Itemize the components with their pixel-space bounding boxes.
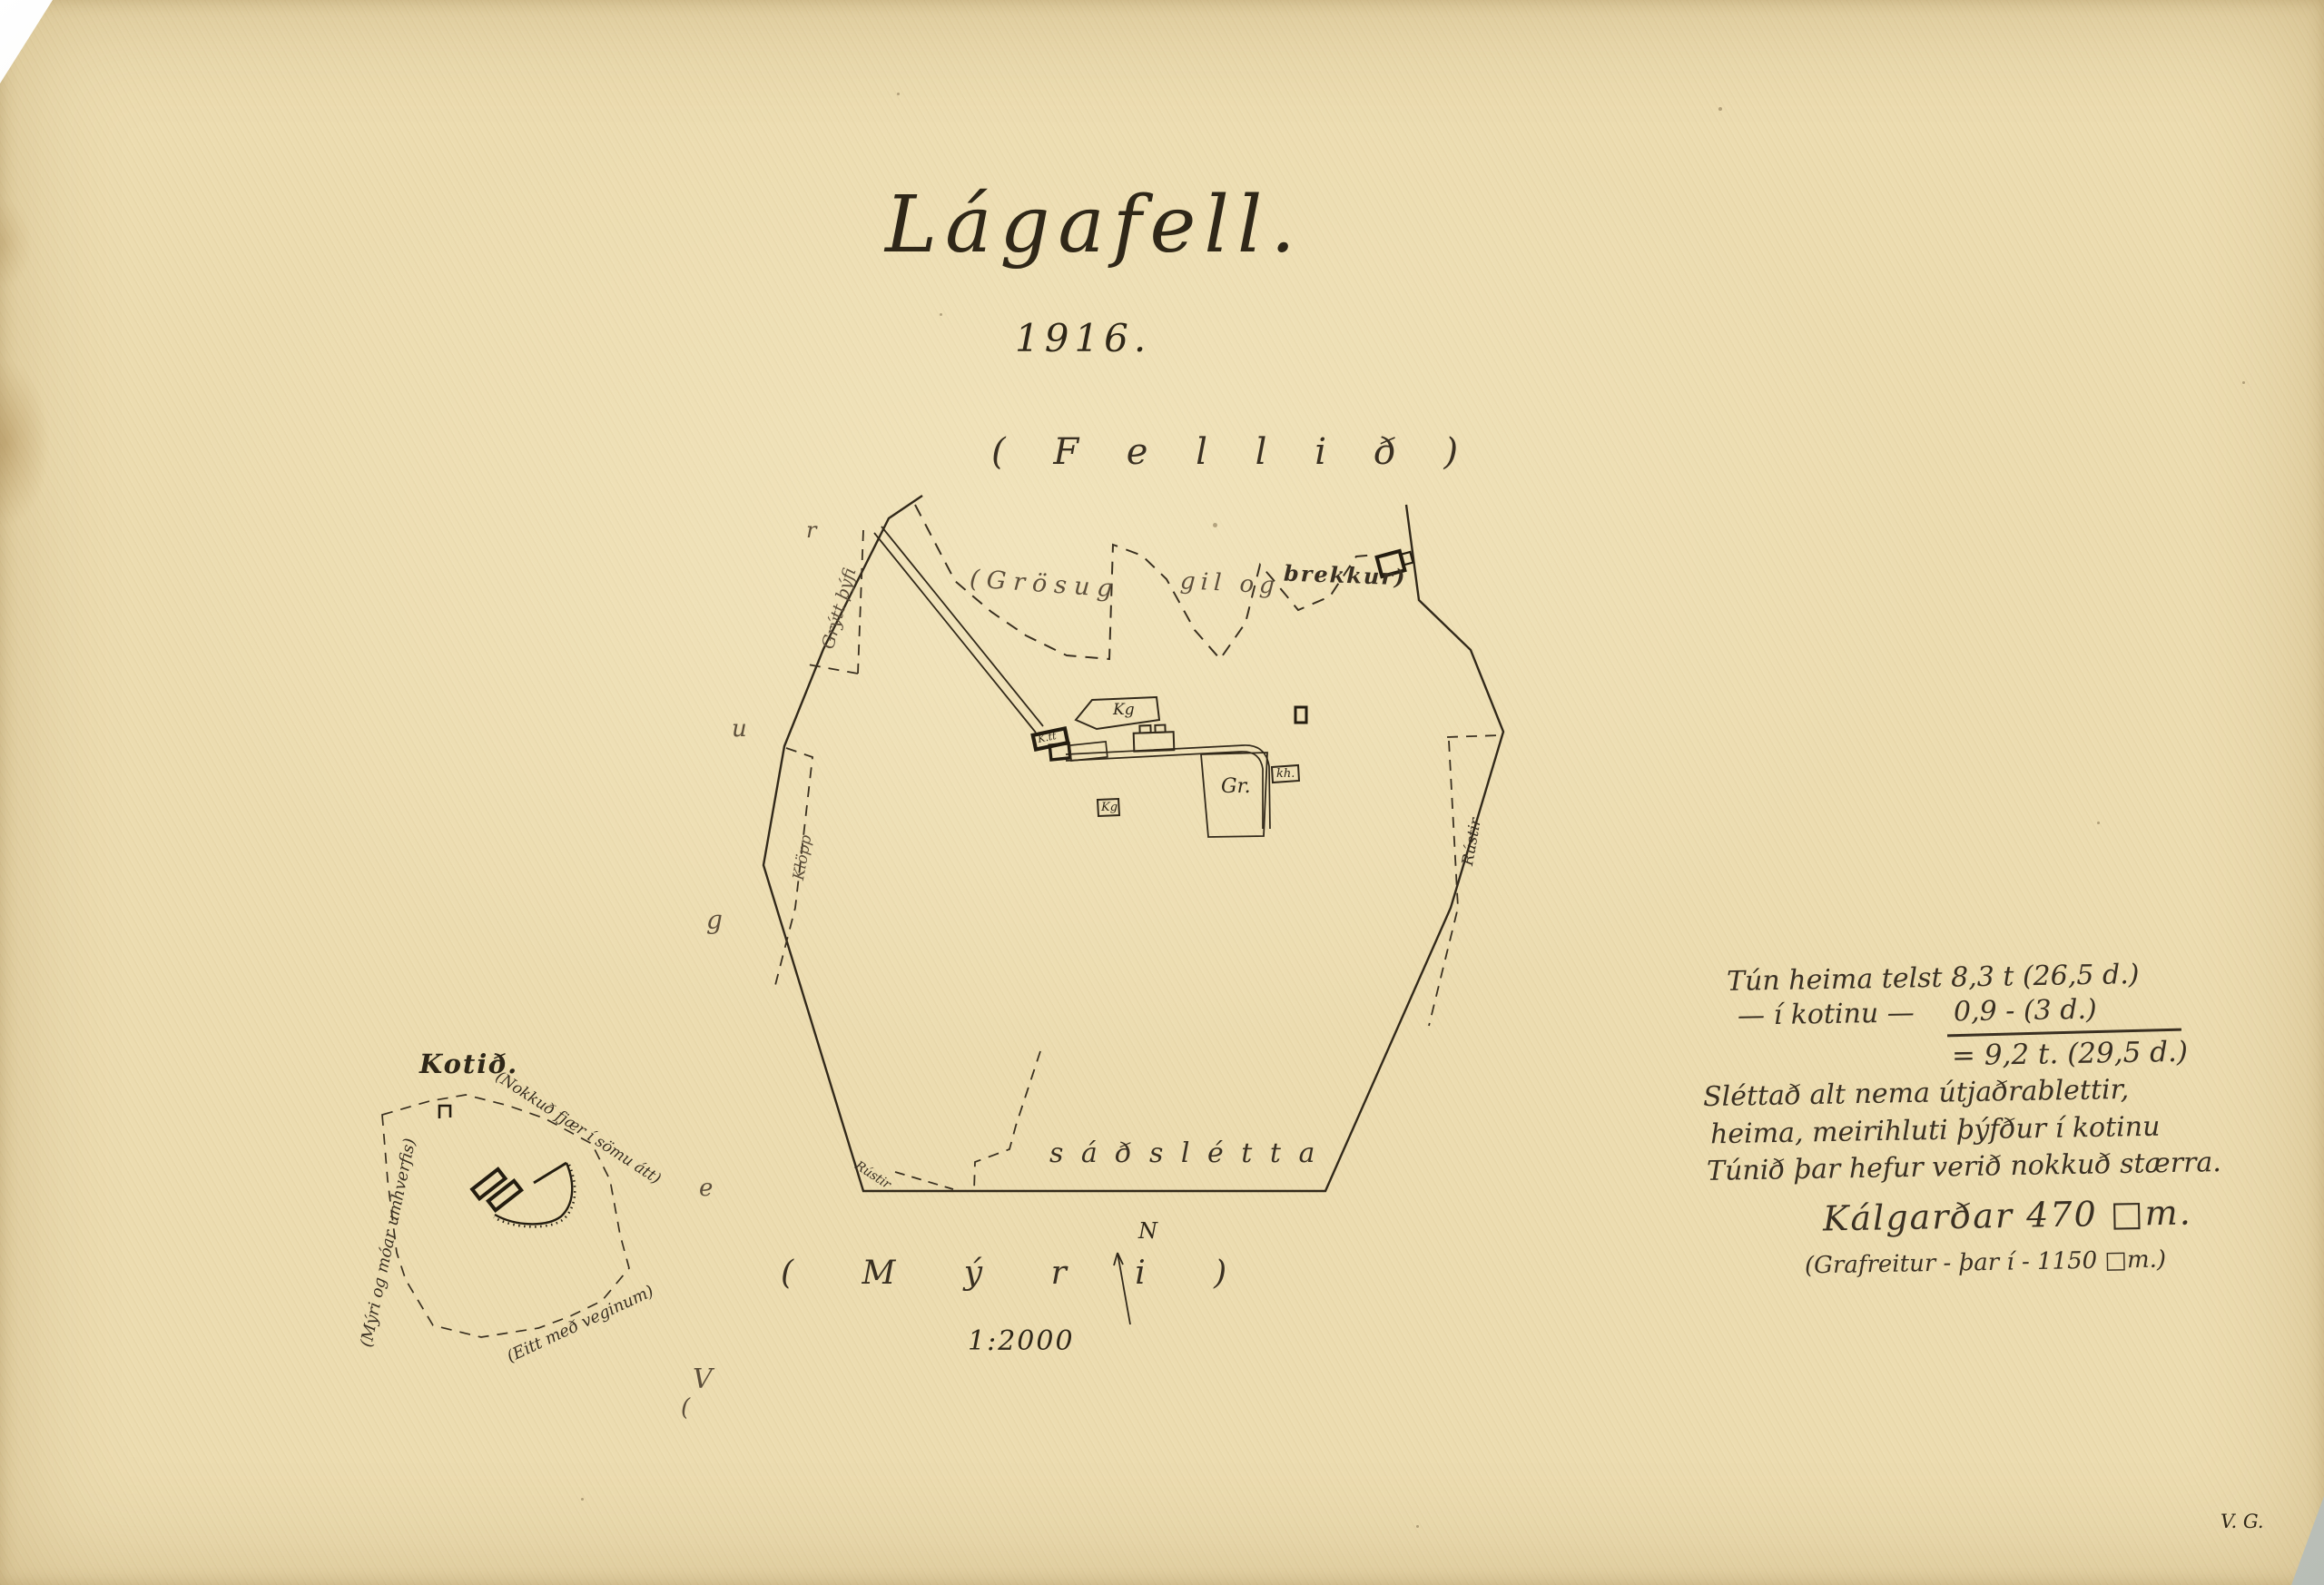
paper-speck	[2097, 822, 2100, 824]
myri-region-label: ( M ý r i )	[781, 1257, 1256, 1290]
vegur-letter-e: e	[699, 1176, 713, 1200]
kalgardur-a-label: Kg	[1113, 703, 1135, 718]
vegur-letter-g: g	[706, 908, 723, 933]
sadsletta-label: s á ð s l é t t a	[1049, 1140, 1319, 1167]
bottom-corner-dashed	[895, 1172, 953, 1189]
church-building	[1133, 724, 1174, 752]
cemetery-label: Gr.	[1221, 777, 1251, 797]
aged-paper-sheet: Lágafell. 1916. ( F e l l i ð ) (Grösug …	[0, 0, 2324, 1585]
scale-label: 1:2000	[968, 1328, 1075, 1355]
paper-speck	[897, 93, 900, 95]
vegur-letter-u: u	[732, 717, 747, 741]
note-grafreitur: (Grafreitur - þar í - 1150 □m.)	[1805, 1248, 2166, 1278]
note-line-1: Tún heima telst 8,3 t (26,5 d.)	[1727, 961, 2140, 996]
vegur-letter-v: V	[693, 1366, 713, 1393]
kotid-enclosure-line	[534, 1163, 566, 1183]
kotid-small-structure	[439, 1106, 450, 1118]
page-year: 1916.	[1015, 320, 1151, 358]
kalgardur-b-label: Kg	[1101, 802, 1118, 813]
paper-speck	[2242, 381, 2245, 384]
paper-speck	[1416, 1525, 1419, 1528]
paper-speck	[940, 313, 942, 316]
vegur-letter-paren: (	[681, 1396, 690, 1420]
paper-speck	[1718, 107, 1722, 111]
tun-boundary-line	[763, 496, 1503, 1191]
kh-label: kh.	[1276, 768, 1295, 780]
north-label: N	[1138, 1220, 1157, 1242]
scanned-map-page: { "header": { "title": "Lágafell.", "yea…	[0, 0, 2324, 1585]
small-hut	[1295, 707, 1306, 723]
sadsletta-dashed	[974, 1051, 1040, 1191]
paper-speck	[581, 1498, 584, 1501]
brekkur-label: brekkur)	[1284, 563, 1407, 589]
note-kalgardar: Kálgarðar 470 □m.	[1823, 1195, 2192, 1236]
note-line-3: = 9,2 t. (29,5 d.)	[1952, 1039, 2188, 1071]
note-line-2b: 0,9 - (3 d.)	[1954, 997, 2097, 1027]
outbuilding-thick	[1049, 743, 1070, 760]
page-title: Lágafell.	[885, 186, 1304, 264]
road-line	[874, 527, 1043, 733]
fell-region-label: ( F e l l i ð )	[991, 434, 1476, 470]
note-line-4: Sléttað alt nema útjaðrablettir,	[1703, 1077, 2130, 1111]
note-line-2a: — í kotinu —	[1738, 999, 1915, 1029]
kotid-farmhouse	[472, 1166, 521, 1214]
note-line-5: heima, meirihluti þýfður í kotinu	[1710, 1114, 2161, 1149]
paper-speck	[1213, 523, 1217, 527]
kotid-enclosure-hachure	[494, 1165, 575, 1226]
vegur-letter-r: r	[806, 519, 816, 541]
outbuilding-thin	[1069, 742, 1108, 761]
surveyor-initials: V. G.	[2221, 1512, 2264, 1531]
gil-og-label: gil og	[1179, 569, 1280, 598]
kotid-enclosure-arc	[495, 1163, 572, 1224]
